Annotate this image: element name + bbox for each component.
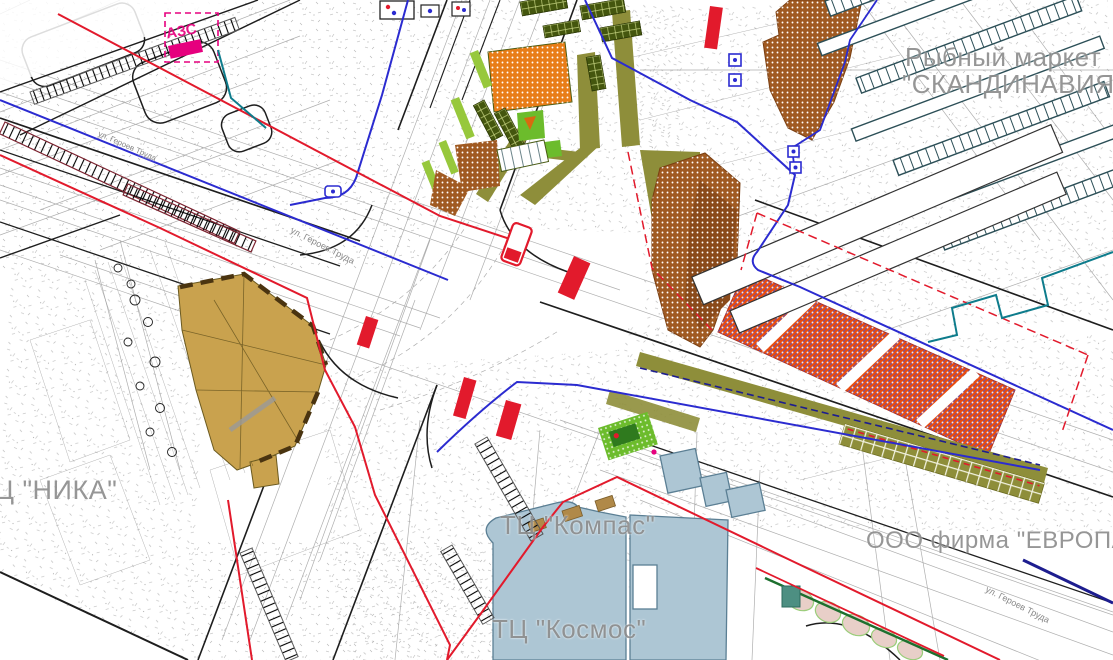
label-fish-market-line2: "СКАНДИНАВИЯ" (902, 71, 1113, 97)
label-mall-nika: Ц "НИКА" (0, 477, 117, 504)
map-canvas[interactable]: АЗС Рыбный маркет "СКАНДИНАВИЯ" Ц "НИКА"… (0, 0, 1113, 660)
map-drawing (0, 0, 1113, 660)
teal-block (782, 586, 800, 607)
label-mall-kompas: ТЦ "Компас" (500, 512, 655, 538)
bus-shelter (500, 222, 532, 266)
tree-strip-bottom-right (765, 578, 948, 660)
cad-city-plan-screenshot: { "map": { "type": "urban-planning-cad-d… (0, 0, 1113, 660)
label-fish-market-line1: Рыбный маркет (905, 44, 1101, 70)
label-mall-kosmos: ТЦ "Космос" (492, 616, 646, 642)
magenta-marker-dot (651, 449, 656, 454)
orange-square-plaza (488, 42, 572, 112)
label-firm-evropa: ООО фирма "ЕВРОПА" (866, 529, 1113, 553)
